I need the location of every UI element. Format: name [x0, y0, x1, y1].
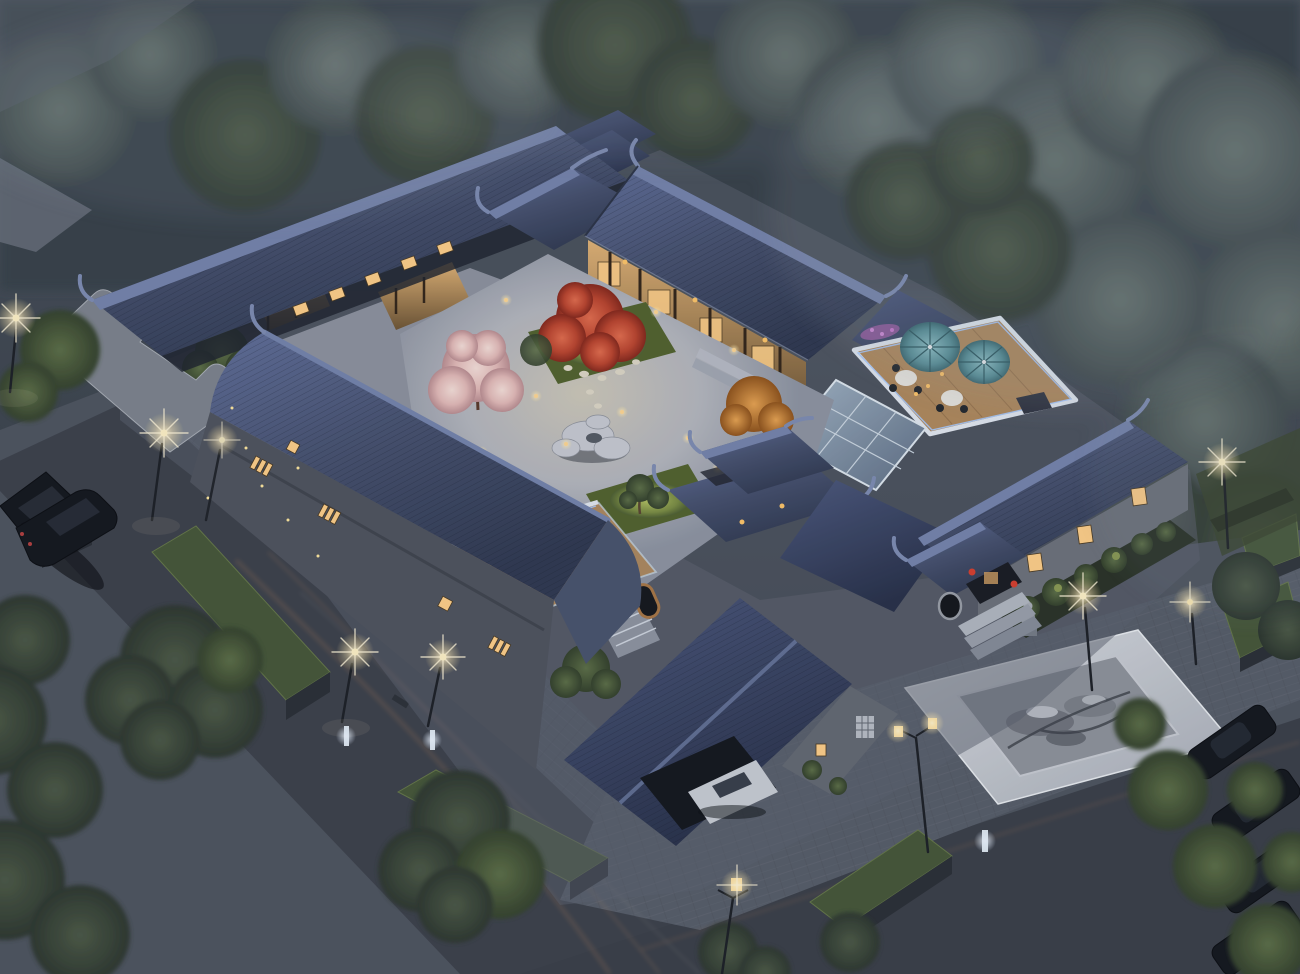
color-grade: [0, 0, 1300, 974]
render-canvas: [0, 0, 1300, 974]
architectural-render: [0, 0, 1300, 974]
